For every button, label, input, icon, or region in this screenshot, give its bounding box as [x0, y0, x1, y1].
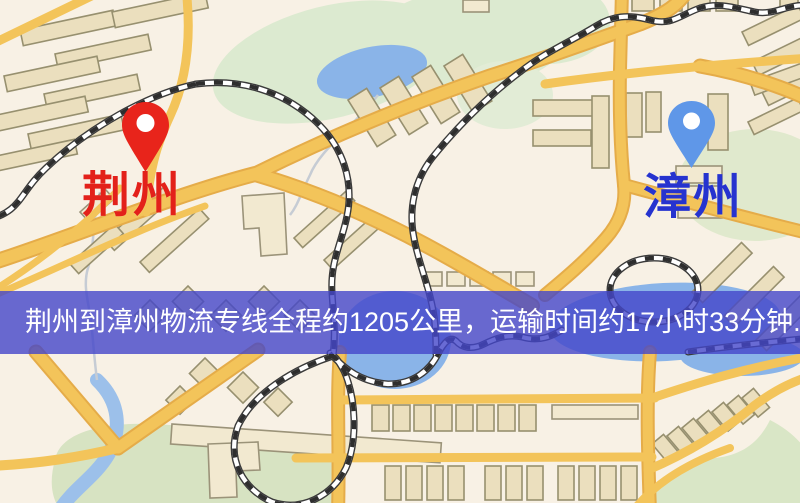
- destination-pin-icon: [668, 101, 715, 168]
- destination-label: 漳州: [643, 174, 743, 222]
- origin-marker-pin[interactable]: [122, 102, 169, 172]
- origin-pin-icon: [122, 102, 169, 172]
- map-canvas: [0, 0, 800, 503]
- destination-marker-pin[interactable]: [668, 101, 715, 168]
- route-info-banner: 荆州到漳州物流专线全程约1205公里，运输时间约17小时33分钟.: [0, 291, 800, 354]
- map-screenshot: 荆州 漳州 荆州到漳州物流专线全程约1205公里，运输时间约17小时33分钟.: [0, 0, 800, 503]
- origin-label: 荆州: [82, 172, 182, 220]
- route-info-text: 荆州到漳州物流专线全程约1205公里，运输时间约17小时33分钟.: [0, 309, 800, 336]
